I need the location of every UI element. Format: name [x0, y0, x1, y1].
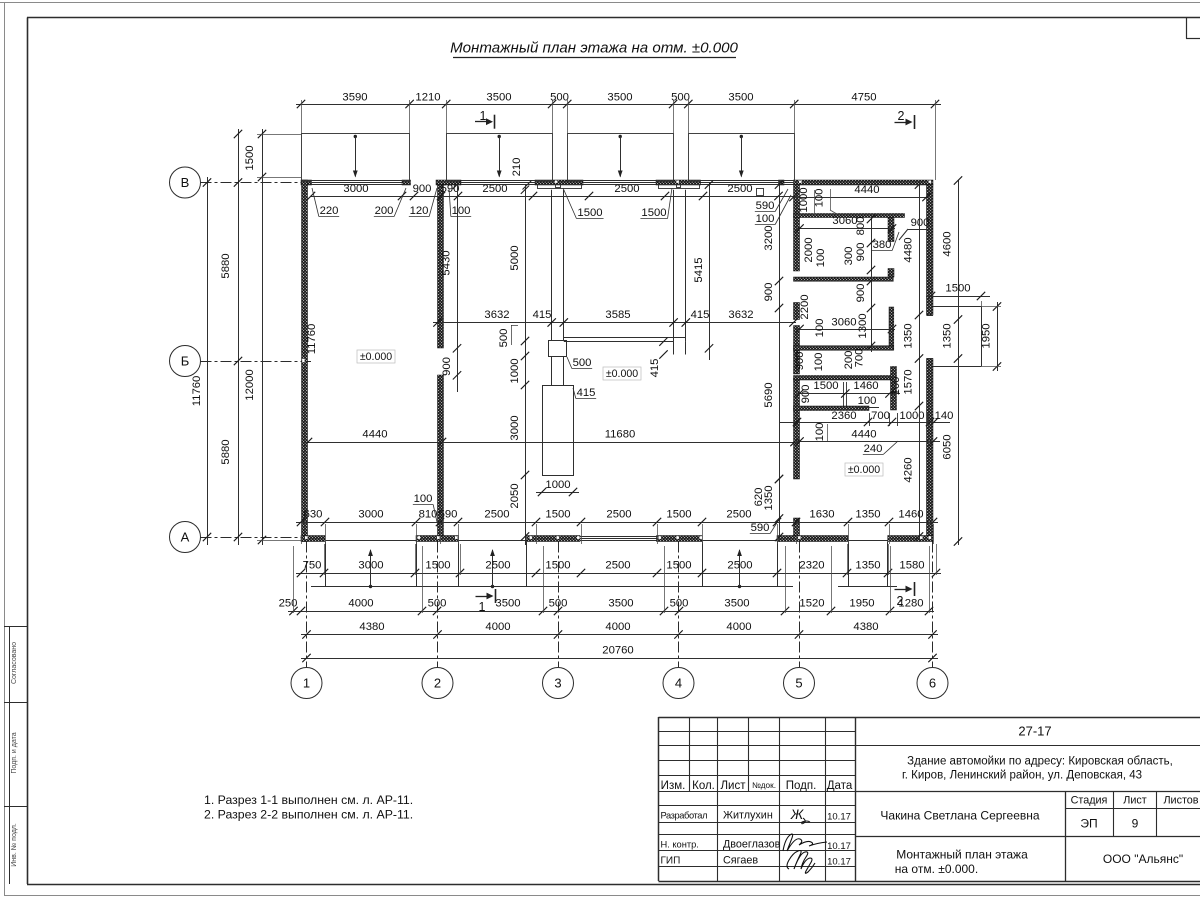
- svg-text:4000: 4000: [605, 621, 630, 633]
- svg-text:140: 140: [935, 410, 954, 422]
- svg-text:1500: 1500: [425, 560, 450, 572]
- svg-text:500: 500: [670, 598, 689, 610]
- svg-text:5: 5: [795, 676, 802, 691]
- svg-text:3200: 3200: [763, 225, 775, 250]
- svg-text:1500: 1500: [577, 207, 602, 219]
- svg-text:Чакина Светлана Сергеевна: Чакина Светлана Сергеевна: [880, 809, 1039, 823]
- svg-text:2500: 2500: [727, 183, 752, 195]
- svg-text:1500: 1500: [945, 283, 970, 295]
- svg-text:3632: 3632: [728, 309, 753, 321]
- svg-text:700: 700: [871, 410, 890, 422]
- svg-text:250: 250: [279, 598, 298, 610]
- svg-text:415: 415: [691, 309, 710, 321]
- svg-text:500: 500: [549, 598, 568, 610]
- svg-text:4440: 4440: [362, 429, 387, 441]
- svg-text:750: 750: [303, 560, 322, 572]
- svg-text:3500: 3500: [607, 92, 632, 104]
- svg-text:20760: 20760: [602, 645, 633, 657]
- svg-text:2500: 2500: [485, 560, 510, 572]
- svg-text:1500: 1500: [666, 509, 691, 521]
- svg-text:120: 120: [410, 205, 429, 217]
- svg-text:Монтажный план этажа на отм. ±: Монтажный план этажа на отм. ±0.000: [450, 40, 738, 57]
- svg-text:220: 220: [320, 205, 339, 217]
- svg-text:1460: 1460: [898, 509, 923, 521]
- svg-text:900: 900: [794, 352, 806, 371]
- svg-text:Подп. и дата: Подп. и дата: [11, 732, 18, 773]
- svg-text:100: 100: [414, 493, 433, 505]
- svg-text:6050: 6050: [942, 434, 954, 459]
- svg-text:2500: 2500: [726, 509, 751, 521]
- svg-text:200: 200: [375, 205, 394, 217]
- svg-text:500: 500: [498, 329, 510, 348]
- svg-text:1570: 1570: [903, 369, 915, 394]
- svg-text:3500: 3500: [724, 598, 749, 610]
- svg-text:700: 700: [854, 349, 866, 368]
- svg-text:100: 100: [814, 319, 826, 338]
- svg-text:Дата: Дата: [827, 780, 853, 792]
- svg-text:1500: 1500: [666, 560, 691, 572]
- svg-text:2500: 2500: [606, 509, 631, 521]
- svg-text:3500: 3500: [486, 92, 511, 104]
- svg-text:4480: 4480: [903, 237, 915, 262]
- svg-text:1950: 1950: [981, 323, 993, 348]
- svg-text:100: 100: [814, 423, 826, 442]
- svg-text:4000: 4000: [726, 621, 751, 633]
- svg-text:4: 4: [675, 676, 682, 691]
- svg-text:Ж: Ж: [790, 807, 805, 822]
- svg-text:4380: 4380: [359, 621, 384, 633]
- svg-text:2320: 2320: [799, 560, 824, 572]
- svg-text:500: 500: [550, 92, 569, 104]
- svg-text:1460: 1460: [853, 380, 878, 392]
- svg-text:4260: 4260: [903, 457, 915, 482]
- svg-text:590: 590: [756, 200, 775, 212]
- svg-text:2500: 2500: [482, 183, 507, 195]
- svg-text:Двоеглазов: Двоеглазов: [723, 839, 781, 851]
- svg-text:на отм. ±0.000.: на отм. ±0.000.: [895, 862, 978, 876]
- svg-text:1630: 1630: [809, 509, 834, 521]
- svg-text:10.17: 10.17: [827, 857, 851, 868]
- svg-text:Здание автомойки по адресу: Ки: Здание автомойки по адресу: Кировская об…: [907, 756, 1173, 768]
- svg-text:1500: 1500: [545, 509, 570, 521]
- svg-text:1500: 1500: [641, 207, 666, 219]
- svg-text:210: 210: [511, 158, 523, 177]
- svg-text:Разработал: Разработал: [661, 811, 708, 821]
- svg-text:3000: 3000: [343, 183, 368, 195]
- svg-text:6: 6: [929, 676, 936, 691]
- svg-text:5415: 5415: [693, 257, 705, 282]
- svg-text:2000: 2000: [803, 237, 815, 262]
- svg-text:900: 900: [413, 183, 432, 195]
- svg-text:4600: 4600: [942, 231, 954, 256]
- svg-text:1580: 1580: [899, 560, 924, 572]
- svg-text:ГИП: ГИП: [661, 856, 681, 867]
- svg-text:10.17: 10.17: [827, 812, 851, 823]
- svg-text:1500: 1500: [813, 380, 838, 392]
- svg-text:5430: 5430: [441, 250, 453, 275]
- svg-text:Стадия: Стадия: [1071, 795, 1108, 807]
- svg-text:100: 100: [858, 395, 877, 407]
- svg-text:100: 100: [890, 377, 902, 396]
- svg-text:3000: 3000: [358, 509, 383, 521]
- svg-text:5690: 5690: [763, 382, 775, 407]
- svg-text:3500: 3500: [728, 92, 753, 104]
- svg-text:2500: 2500: [605, 560, 630, 572]
- svg-text:1000: 1000: [509, 358, 521, 383]
- svg-text:Изм.: Изм.: [661, 780, 686, 792]
- svg-text:4000: 4000: [485, 621, 510, 633]
- svg-text:2: 2: [898, 109, 905, 123]
- svg-text:3: 3: [554, 676, 561, 691]
- svg-text:100: 100: [813, 353, 825, 372]
- svg-text:Б: Б: [181, 354, 190, 369]
- svg-text:590: 590: [751, 522, 770, 534]
- svg-text:1350: 1350: [855, 509, 880, 521]
- svg-text:Лист: Лист: [721, 780, 747, 792]
- svg-text:Монтажный план этажа: Монтажный план этажа: [896, 848, 1028, 862]
- svg-text:2500: 2500: [614, 183, 639, 195]
- svg-text:4000: 4000: [348, 598, 373, 610]
- svg-text:1350: 1350: [855, 560, 880, 572]
- svg-text:±0.000: ±0.000: [606, 368, 638, 380]
- svg-text:5000: 5000: [509, 245, 521, 270]
- svg-text:±0.000: ±0.000: [848, 464, 880, 476]
- svg-text:Согласовано: Согласовано: [11, 642, 18, 684]
- svg-text:100: 100: [814, 189, 826, 208]
- svg-text:900: 900: [855, 243, 867, 262]
- svg-text:Листов: Листов: [1163, 795, 1198, 807]
- svg-text:ООО "Альянс": ООО "Альянс": [1103, 852, 1183, 866]
- svg-text:415: 415: [649, 359, 661, 378]
- svg-text:Сягаев: Сягаев: [723, 855, 758, 867]
- svg-text:Инв. № подл.: Инв. № подл.: [11, 823, 18, 867]
- svg-text:5880: 5880: [220, 439, 232, 464]
- svg-text:3000: 3000: [358, 560, 383, 572]
- svg-text:415: 415: [577, 387, 596, 399]
- svg-text:4440: 4440: [854, 184, 879, 196]
- svg-text:11760: 11760: [306, 324, 318, 355]
- svg-text:3632: 3632: [484, 309, 509, 321]
- svg-text:3585: 3585: [605, 309, 630, 321]
- svg-text:1: 1: [480, 109, 487, 123]
- svg-text:1350: 1350: [763, 485, 775, 510]
- svg-text:№док.: №док.: [752, 781, 776, 790]
- svg-text:Подп.: Подп.: [786, 780, 817, 792]
- svg-text:500: 500: [573, 357, 592, 369]
- svg-text:2500: 2500: [484, 509, 509, 521]
- svg-text:9: 9: [1132, 817, 1139, 831]
- svg-text:300: 300: [843, 247, 855, 266]
- svg-text:27-17: 27-17: [1018, 724, 1051, 739]
- svg-text:2050: 2050: [509, 483, 521, 508]
- svg-text:1520: 1520: [799, 598, 824, 610]
- svg-text:3590: 3590: [342, 92, 367, 104]
- svg-text:1000: 1000: [899, 410, 924, 422]
- svg-text:1950: 1950: [849, 598, 874, 610]
- svg-text:2. Разрез 2-2 выполнен см. л.: 2. Разрез 2-2 выполнен см. л. АР-11.: [204, 808, 413, 822]
- svg-text:1350: 1350: [942, 323, 954, 348]
- svg-text:1. Разрез 1-1 выполнен см. л.: 1. Разрез 1-1 выполнен см. л. АР-11.: [204, 793, 413, 807]
- svg-text:590: 590: [439, 509, 458, 521]
- svg-text:240: 240: [864, 443, 883, 455]
- svg-text:100: 100: [756, 213, 775, 225]
- svg-text:1280: 1280: [898, 598, 923, 610]
- svg-text:1300: 1300: [857, 313, 869, 338]
- svg-text:Житлухин: Житлухин: [723, 810, 773, 822]
- svg-text:100: 100: [452, 205, 471, 217]
- svg-text:11760: 11760: [191, 376, 203, 407]
- svg-text:1: 1: [303, 676, 310, 691]
- svg-text:1500: 1500: [545, 560, 570, 572]
- svg-text:415: 415: [533, 309, 552, 321]
- svg-text:г. Киров, Ленинский район, ул.: г. Киров, Ленинский район, ул. Деповская…: [902, 770, 1142, 782]
- svg-text:12000: 12000: [244, 369, 256, 400]
- svg-text:800: 800: [855, 217, 867, 236]
- svg-text:Кол.: Кол.: [692, 780, 715, 792]
- svg-text:3500: 3500: [608, 598, 633, 610]
- svg-text:500: 500: [428, 598, 447, 610]
- svg-text:11680: 11680: [605, 429, 636, 441]
- svg-text:3060: 3060: [831, 317, 856, 329]
- svg-text:1000: 1000: [545, 479, 570, 491]
- svg-text:1350: 1350: [903, 323, 915, 348]
- svg-text:4750: 4750: [851, 92, 876, 104]
- svg-text:100: 100: [815, 249, 827, 268]
- svg-text:3060: 3060: [832, 215, 857, 227]
- svg-text:4380: 4380: [853, 621, 878, 633]
- svg-text:В: В: [181, 175, 190, 190]
- svg-text:1000: 1000: [798, 187, 810, 212]
- svg-text:ЭП: ЭП: [1080, 817, 1097, 831]
- svg-text:10.17: 10.17: [827, 841, 851, 852]
- svg-text:1210: 1210: [415, 92, 440, 104]
- svg-text:2200: 2200: [799, 294, 811, 319]
- svg-text:630: 630: [304, 509, 323, 521]
- svg-text:А: А: [181, 530, 190, 545]
- svg-text:4440: 4440: [851, 429, 876, 441]
- svg-text:2: 2: [434, 676, 441, 691]
- svg-text:900: 900: [441, 357, 453, 376]
- svg-text:380: 380: [873, 239, 892, 251]
- svg-text:Лист: Лист: [1123, 795, 1147, 807]
- svg-text:3500: 3500: [495, 598, 520, 610]
- svg-text:5880: 5880: [220, 253, 232, 278]
- svg-text:1500: 1500: [244, 145, 256, 170]
- svg-text:900: 900: [855, 284, 867, 303]
- svg-text:Н. контр.: Н. контр.: [661, 840, 699, 850]
- svg-text:3000: 3000: [509, 415, 521, 440]
- svg-text:900: 900: [763, 283, 775, 302]
- svg-text:2360: 2360: [831, 410, 856, 422]
- svg-text:2500: 2500: [727, 560, 752, 572]
- svg-text:500: 500: [671, 92, 690, 104]
- svg-text:±0.000: ±0.000: [360, 351, 392, 363]
